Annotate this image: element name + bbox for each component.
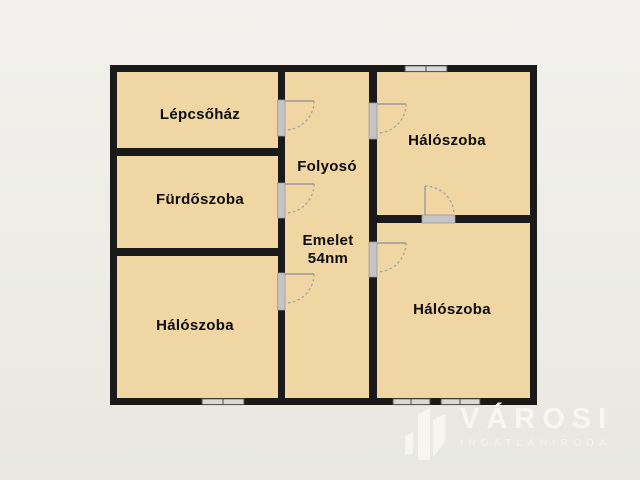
door-bathroom: [278, 183, 286, 218]
building-shape-tall: [418, 408, 430, 460]
brand-buildings-icon: [402, 407, 448, 463]
door-staircase: [278, 100, 286, 136]
watermark-text: VÁROSI INGATLANIRODA: [460, 405, 613, 449]
label-bathroom: Fürdőszoba: [156, 191, 244, 208]
building-shape-small: [405, 432, 413, 456]
watermark: VÁROSI INGATLANIRODA: [402, 405, 613, 463]
brand-name: VÁROSI: [460, 405, 613, 434]
label-staircase: Lépcsőház: [160, 106, 240, 123]
door-between-right-bedrooms: [422, 215, 455, 223]
door-bedroom-top-right: [369, 103, 377, 139]
label-hallway: Folyosó: [297, 158, 357, 175]
floor-plan-page: Lépcsőház Fürdőszoba Hálószoba Folyosó H…: [0, 0, 640, 480]
brand-subtitle: INGATLANIRODA: [460, 439, 613, 449]
building-shape-right: [433, 414, 445, 457]
door-bedroom-bottom-left: [278, 273, 286, 310]
label-bedroom-bottom-left: Hálószoba: [156, 317, 234, 334]
floor-title: Emelet: [303, 232, 354, 249]
label-bedroom-top-right: Hálószoba: [408, 132, 486, 149]
label-bedroom-bottom-right: Hálószoba: [413, 301, 491, 318]
door-bedroom-bottom-right: [369, 242, 377, 277]
floor-area: 54nm: [308, 250, 348, 267]
